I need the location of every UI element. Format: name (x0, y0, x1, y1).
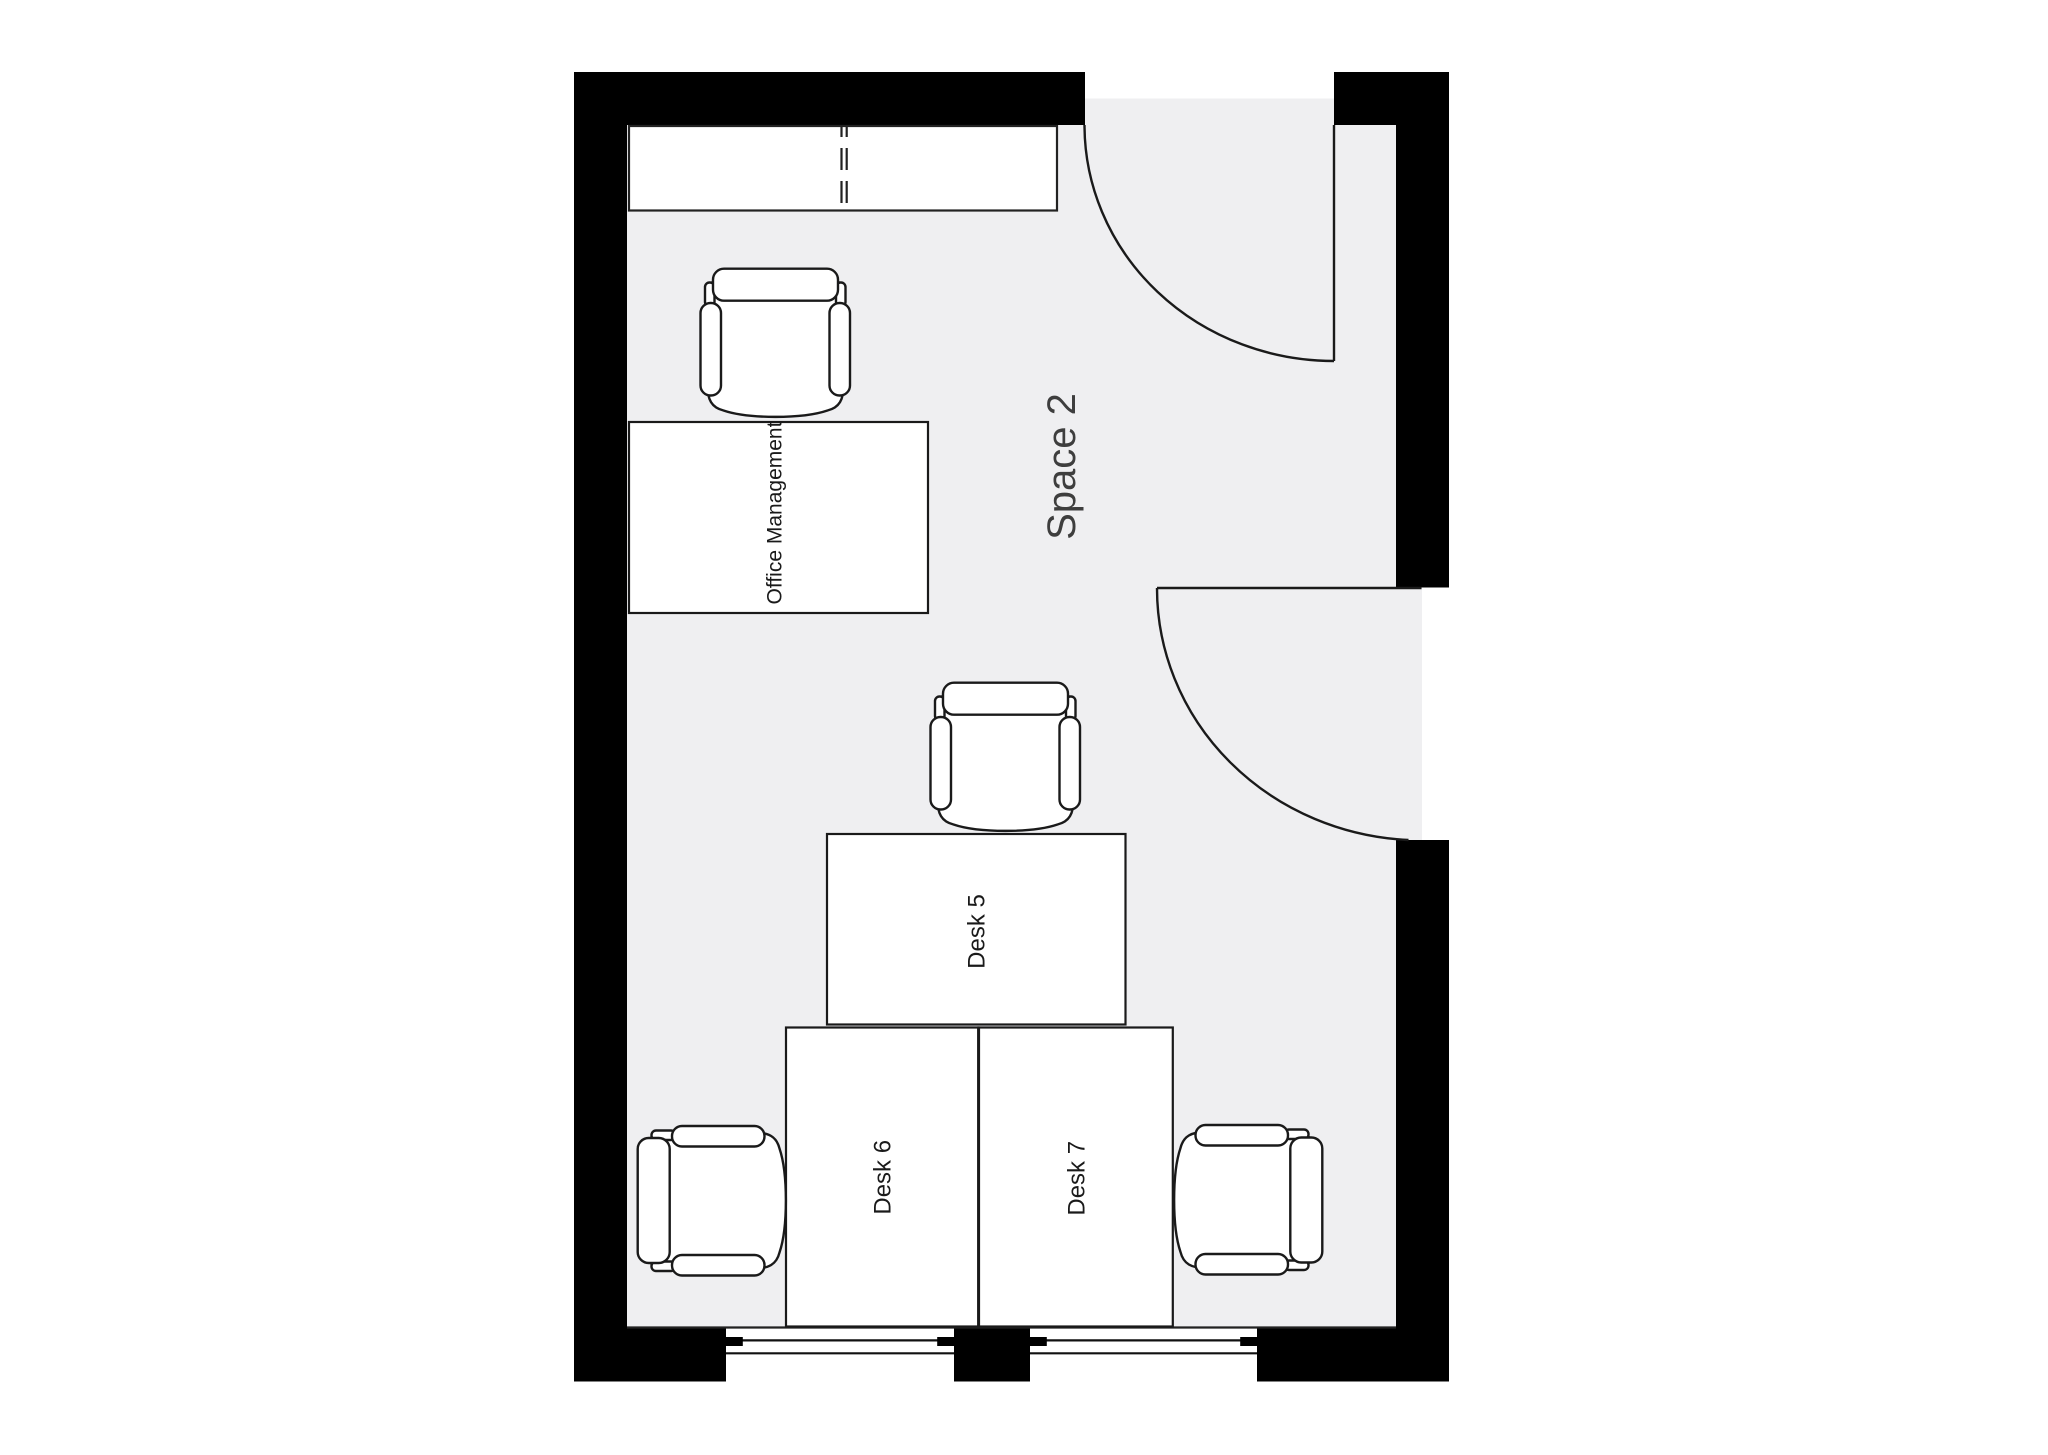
svg-text:Space 2: Space 2 (1040, 393, 1084, 540)
svg-text:Office Management: Office Management (764, 421, 787, 604)
svg-text:Desk 6: Desk 6 (870, 1140, 897, 1215)
svg-text:Desk 5: Desk 5 (963, 894, 990, 969)
svg-text:Desk 7: Desk 7 (1063, 1141, 1090, 1216)
